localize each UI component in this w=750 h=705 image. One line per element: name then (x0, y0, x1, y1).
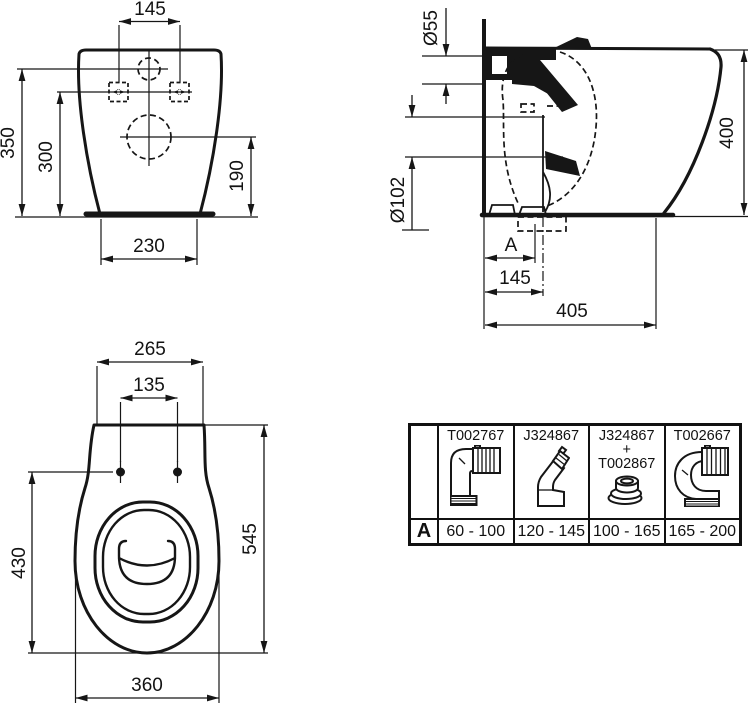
dim-overall-height: 350 (0, 127, 19, 159)
side-extension-lines (402, 50, 748, 329)
side-view: Ø55 Ø102 400 A 145 405 (388, 8, 748, 329)
part-code-2: T002867 (598, 457, 655, 471)
table-column-2: J324867 120 - 145 (513, 426, 589, 543)
hinge-hole-ticks (121, 461, 178, 483)
connector-cell: T002667 (666, 426, 740, 518)
dim-overall-depth: 545 (240, 523, 261, 555)
dim-outlet-height: 190 (227, 160, 248, 192)
drawing-svg: 145 350 300 190 230 Ø55 Ø102 400 (0, 0, 750, 705)
table-column-3: J324867 + T002867 100 - 165 (588, 426, 664, 543)
part-code: T002767 (447, 429, 504, 443)
hidden-outlet-below-floor (518, 217, 566, 231)
dim-hinge-spacing: 135 (133, 375, 165, 396)
rim-channel-section (512, 73, 566, 104)
dim-inlet-diameter: Ø55 (421, 10, 442, 46)
table-label-column: A (411, 426, 437, 543)
table-column-1: T002767 60 - 100 (437, 426, 513, 543)
dim-outlet-diameter: Ø102 (388, 177, 409, 223)
dim-back-width: 265 (134, 339, 166, 360)
connector-cell: J324867 + T002867 (590, 426, 664, 518)
dim-base-depth: 405 (556, 301, 588, 322)
gasket-ring-icon (605, 473, 649, 505)
part-code: J324867 (599, 429, 655, 443)
dim-fixing-height: 300 (36, 141, 57, 173)
depth-range: 120 - 145 (515, 518, 589, 543)
table-corner-cell (411, 426, 437, 518)
seat-hinge-section (552, 37, 592, 49)
connector-cell: T002767 (439, 426, 513, 518)
technical-drawing-canvas: 145 350 300 190 230 Ø55 Ø102 400 (0, 0, 750, 705)
depth-range: 165 - 200 (666, 518, 740, 543)
rim-top-line (486, 48, 710, 49)
seat-ring-outer (95, 502, 198, 622)
seat-ring-inner (103, 510, 190, 614)
table-column-4: T002667 165 - 200 (664, 426, 740, 543)
dim-hole-spacing: 145 (134, 0, 166, 20)
dim-seat-length: 430 (9, 547, 30, 579)
dim-bowl-width: 360 (131, 675, 163, 696)
front-view: 145 350 300 190 230 (0, 0, 258, 265)
dim-outlet-offset: 145 (499, 268, 531, 289)
connector-table: A T002767 60 - 100 J324867 (408, 423, 742, 546)
top-view: 265 135 430 545 360 (9, 339, 268, 703)
inlet-bore (492, 56, 507, 74)
top-extension-lines (28, 366, 268, 703)
plus-sign: + (623, 443, 631, 457)
depth-range: 100 - 165 (590, 518, 664, 543)
angled-connector-icon (532, 445, 570, 507)
table-row-label: A (411, 518, 437, 543)
sump-outline (119, 541, 175, 584)
part-code: T002667 (674, 429, 731, 443)
front-outline (79, 50, 222, 214)
side-front-outline (664, 49, 721, 213)
connector-cell: J324867 (515, 426, 589, 518)
elbow-connector-icon (450, 445, 502, 507)
dim-rough-in: A (505, 235, 518, 256)
depth-range: 60 - 100 (439, 518, 513, 543)
dim-side-height: 400 (717, 117, 738, 149)
trap-weir-section (545, 151, 580, 176)
dim-base-width: 230 (133, 236, 165, 257)
part-code: J324867 (523, 429, 579, 443)
swan-neck-connector-icon (673, 445, 731, 507)
